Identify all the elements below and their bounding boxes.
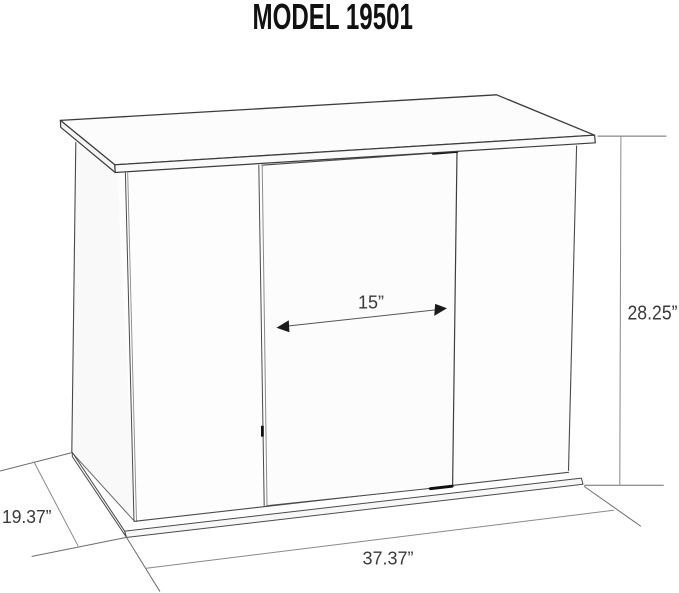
svg-text:19.37”: 19.37”	[2, 507, 52, 527]
svg-text:28.25”: 28.25”	[628, 303, 678, 325]
svg-text:37.37”: 37.37”	[362, 549, 413, 569]
svg-text:15”: 15”	[358, 293, 384, 313]
